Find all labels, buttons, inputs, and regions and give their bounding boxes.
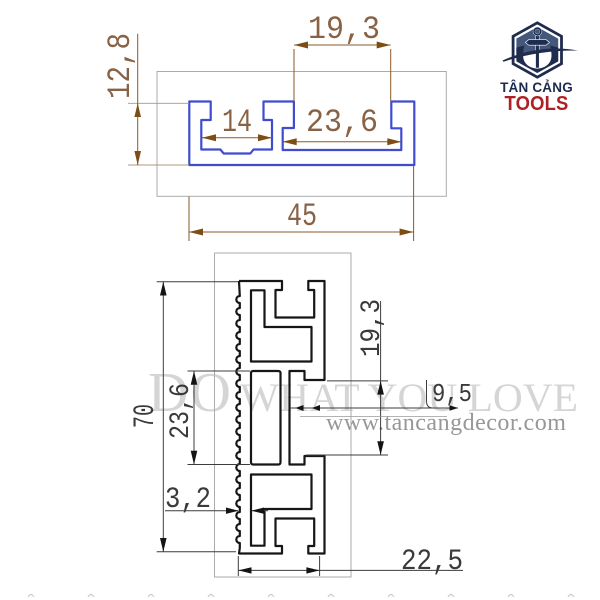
svg-text:3,2: 3,2 — [165, 483, 211, 517]
svg-text:19,3: 19,3 — [357, 299, 388, 357]
svg-text:22,5: 22,5 — [401, 545, 463, 579]
svg-text:70: 70 — [129, 404, 163, 428]
svg-text:14: 14 — [222, 104, 252, 141]
svg-text:23,6: 23,6 — [306, 104, 378, 141]
svg-text:www.tancangdecor.com: www.tancangdecor.com — [326, 410, 566, 436]
svg-text:23,6: 23,6 — [166, 383, 197, 439]
svg-text:45: 45 — [287, 198, 317, 235]
svg-text:12,8: 12,8 — [102, 33, 139, 99]
svg-text:9,5: 9,5 — [432, 379, 472, 409]
svg-text:TOOLS: TOOLS — [505, 93, 569, 115]
svg-text:19,3: 19,3 — [308, 11, 380, 48]
